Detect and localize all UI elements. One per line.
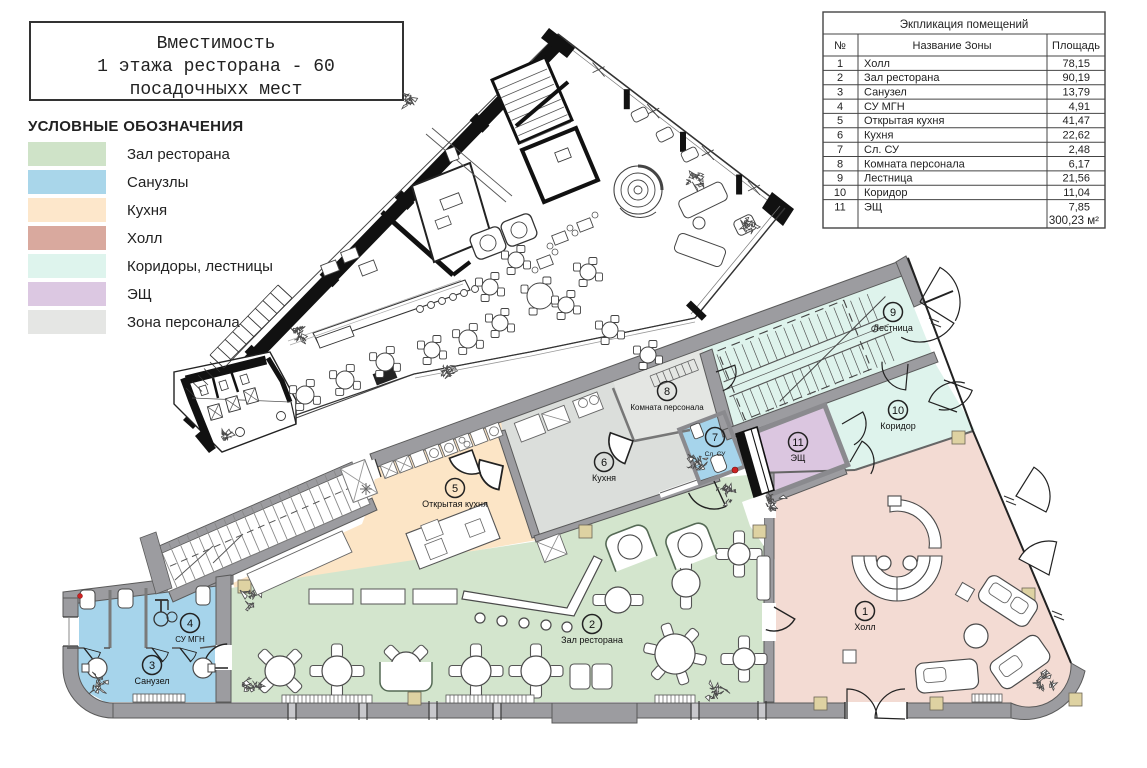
svg-text:Коридоры, лестницы: Коридоры, лестницы: [127, 258, 273, 275]
svg-text:10: 10: [892, 405, 904, 417]
svg-text:13,79: 13,79: [1062, 87, 1090, 99]
svg-text:Зал ресторана: Зал ресторана: [127, 146, 231, 163]
svg-text:1: 1: [837, 58, 843, 70]
svg-text:6: 6: [601, 457, 607, 469]
svg-text:5: 5: [837, 115, 843, 127]
svg-text:4: 4: [187, 618, 193, 630]
svg-text:Санузел: Санузел: [864, 87, 907, 99]
svg-text:2,48: 2,48: [1069, 144, 1090, 156]
svg-text:Холл: Холл: [854, 622, 875, 632]
svg-text:10: 10: [834, 187, 846, 199]
svg-text:Вместимость: Вместимость: [157, 34, 276, 54]
svg-text:Название Зоны: Название Зоны: [913, 40, 992, 52]
svg-text:Лестница: Лестница: [864, 173, 913, 185]
svg-text:Сл. СУ: Сл. СУ: [705, 451, 727, 458]
svg-text:ЭЩ: ЭЩ: [791, 453, 806, 463]
svg-text:7,85: 7,85: [1069, 201, 1090, 213]
svg-text:Площадь: Площадь: [1052, 40, 1100, 52]
svg-text:Холл: Холл: [864, 58, 890, 70]
svg-text:Кухня: Кухня: [864, 130, 893, 142]
svg-text:4: 4: [837, 101, 843, 113]
svg-text:300,23 м²: 300,23 м²: [1049, 215, 1099, 227]
svg-text:ЭЩ: ЭЩ: [864, 201, 882, 213]
svg-text:2: 2: [589, 619, 595, 631]
svg-text:ЭЩ: ЭЩ: [127, 286, 152, 303]
svg-text:9: 9: [890, 307, 896, 319]
svg-text:Экпликация помещений: Экпликация помещений: [900, 19, 1029, 31]
svg-text:90,19: 90,19: [1062, 72, 1090, 84]
svg-text:11,04: 11,04: [1063, 187, 1090, 199]
svg-text:21,56: 21,56: [1062, 173, 1090, 185]
svg-text:3: 3: [837, 87, 843, 99]
svg-text:№: №: [834, 40, 846, 52]
svg-text:УСЛОВНЫЕ ОБОЗНАЧЕНИЯ: УСЛОВНЫЕ ОБОЗНАЧЕНИЯ: [28, 118, 243, 135]
svg-text:Комната персонала: Комната персонала: [864, 158, 966, 170]
svg-text:Санузел: Санузел: [134, 676, 169, 686]
svg-text:22,62: 22,62: [1062, 130, 1090, 142]
svg-text:7: 7: [712, 432, 718, 444]
svg-text:8: 8: [837, 158, 843, 170]
svg-text:6: 6: [837, 130, 843, 142]
svg-text:Открытая кухня: Открытая кухня: [422, 499, 488, 509]
svg-text:Зона персонала: Зона персонала: [127, 314, 240, 331]
svg-text:6,17: 6,17: [1069, 158, 1090, 170]
svg-text:Открытая кухня: Открытая кухня: [864, 115, 944, 127]
svg-text:СУ МГН: СУ МГН: [175, 635, 205, 644]
svg-text:9: 9: [837, 173, 843, 185]
svg-text:Лестница: Лестница: [873, 323, 913, 333]
svg-text:11: 11: [834, 201, 845, 213]
svg-text:1 этажа ресторана - 60: 1 этажа ресторана - 60: [97, 57, 335, 77]
svg-text:8: 8: [664, 386, 670, 398]
svg-text:Кухня: Кухня: [127, 202, 167, 219]
svg-text:Коридор: Коридор: [880, 421, 916, 431]
svg-text:11: 11: [792, 437, 803, 449]
svg-text:41,47: 41,47: [1062, 115, 1090, 127]
svg-text:3: 3: [149, 660, 155, 672]
svg-text:2: 2: [837, 72, 843, 84]
svg-text:посадочныхх мест: посадочныхх мест: [130, 80, 303, 100]
svg-text:Зал ресторана: Зал ресторана: [864, 72, 940, 84]
svg-text:Коридор: Коридор: [864, 187, 907, 199]
svg-text:5: 5: [452, 483, 458, 495]
svg-text:Сл. СУ: Сл. СУ: [864, 144, 900, 156]
svg-text:Санузлы: Санузлы: [127, 174, 188, 191]
svg-text:4,91: 4,91: [1069, 101, 1090, 113]
svg-text:7: 7: [837, 144, 843, 156]
svg-text:Холл: Холл: [127, 230, 162, 247]
svg-text:Зал ресторана: Зал ресторана: [561, 635, 623, 645]
svg-text:СУ МГН: СУ МГН: [864, 101, 905, 113]
svg-text:78,15: 78,15: [1062, 58, 1090, 70]
svg-text:1: 1: [862, 606, 868, 618]
svg-text:Комната персонала: Комната персонала: [630, 403, 704, 412]
svg-text:Кухня: Кухня: [592, 473, 616, 483]
